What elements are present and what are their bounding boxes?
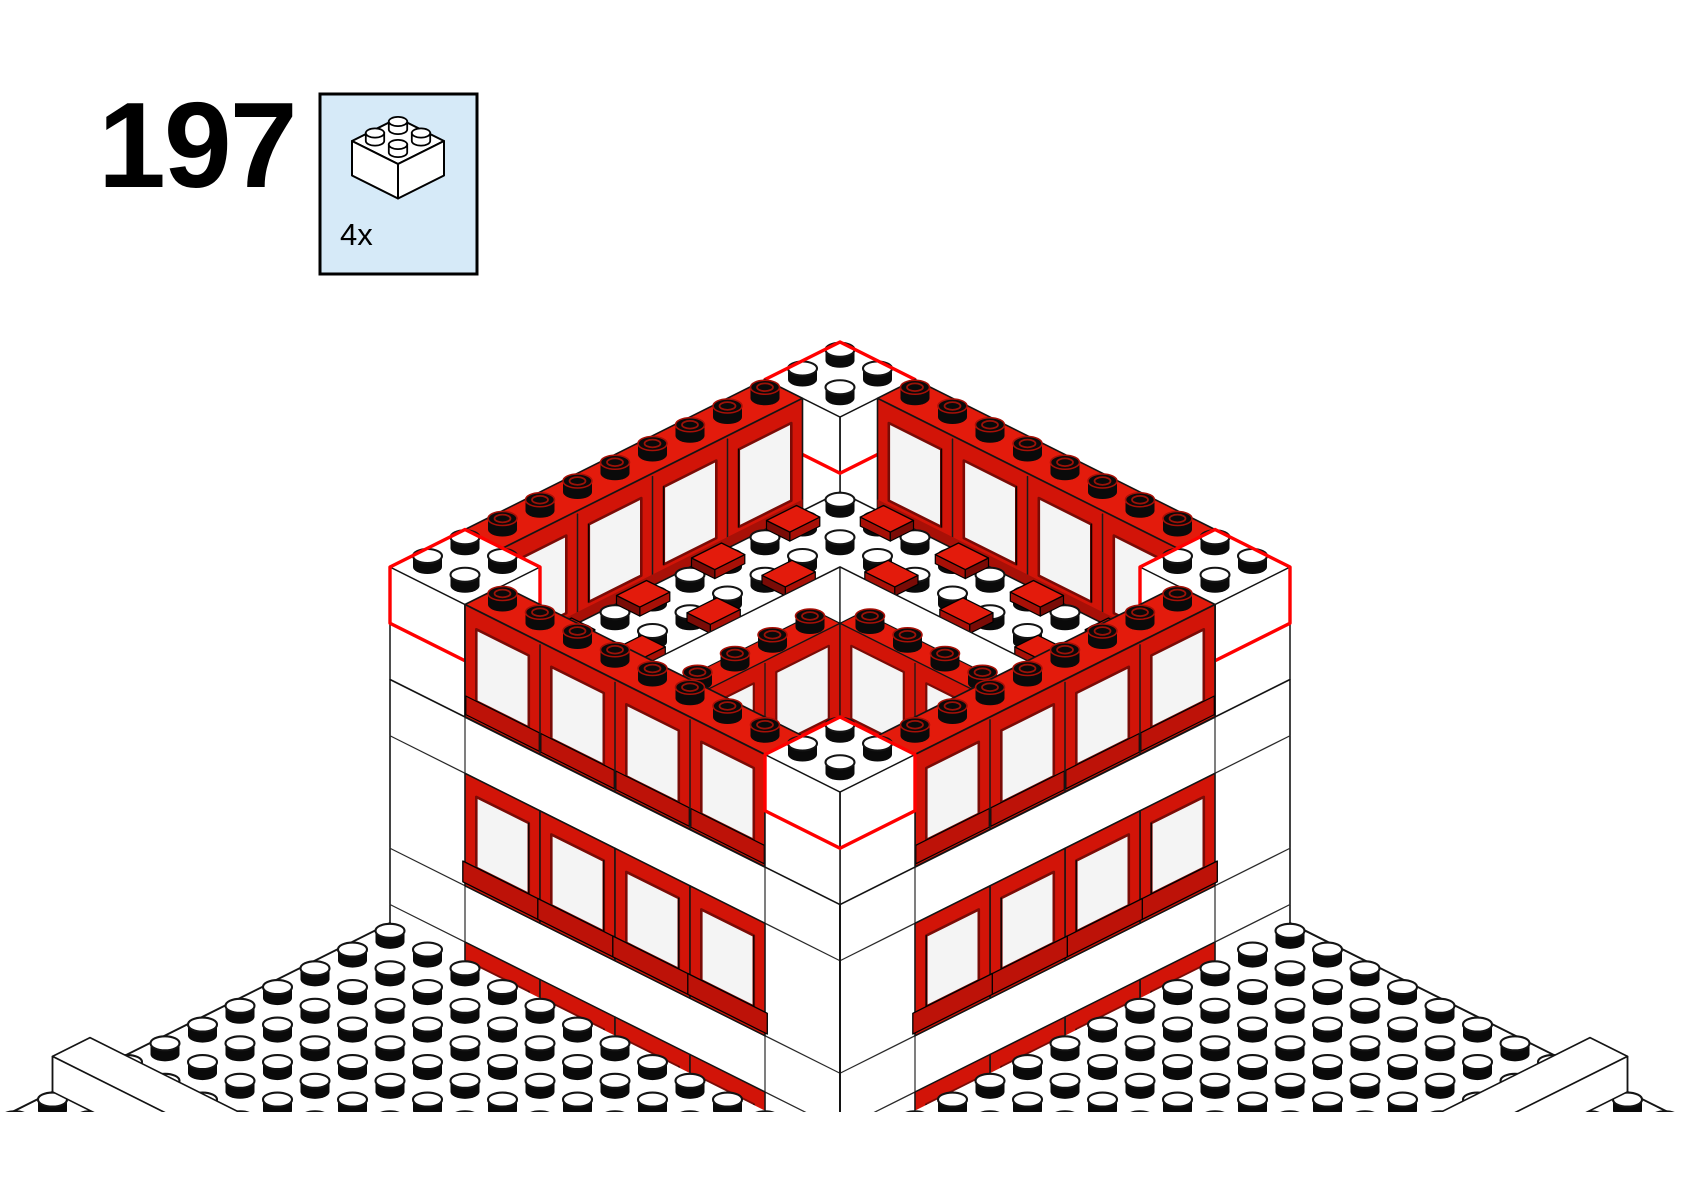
part-quantity-label: 4x bbox=[340, 217, 373, 252]
parts-callout: 4x bbox=[320, 94, 477, 274]
step-number: 197 bbox=[98, 77, 296, 213]
page: 197 4x bbox=[0, 0, 1684, 1192]
building-illustration bbox=[0, 342, 1684, 1192]
